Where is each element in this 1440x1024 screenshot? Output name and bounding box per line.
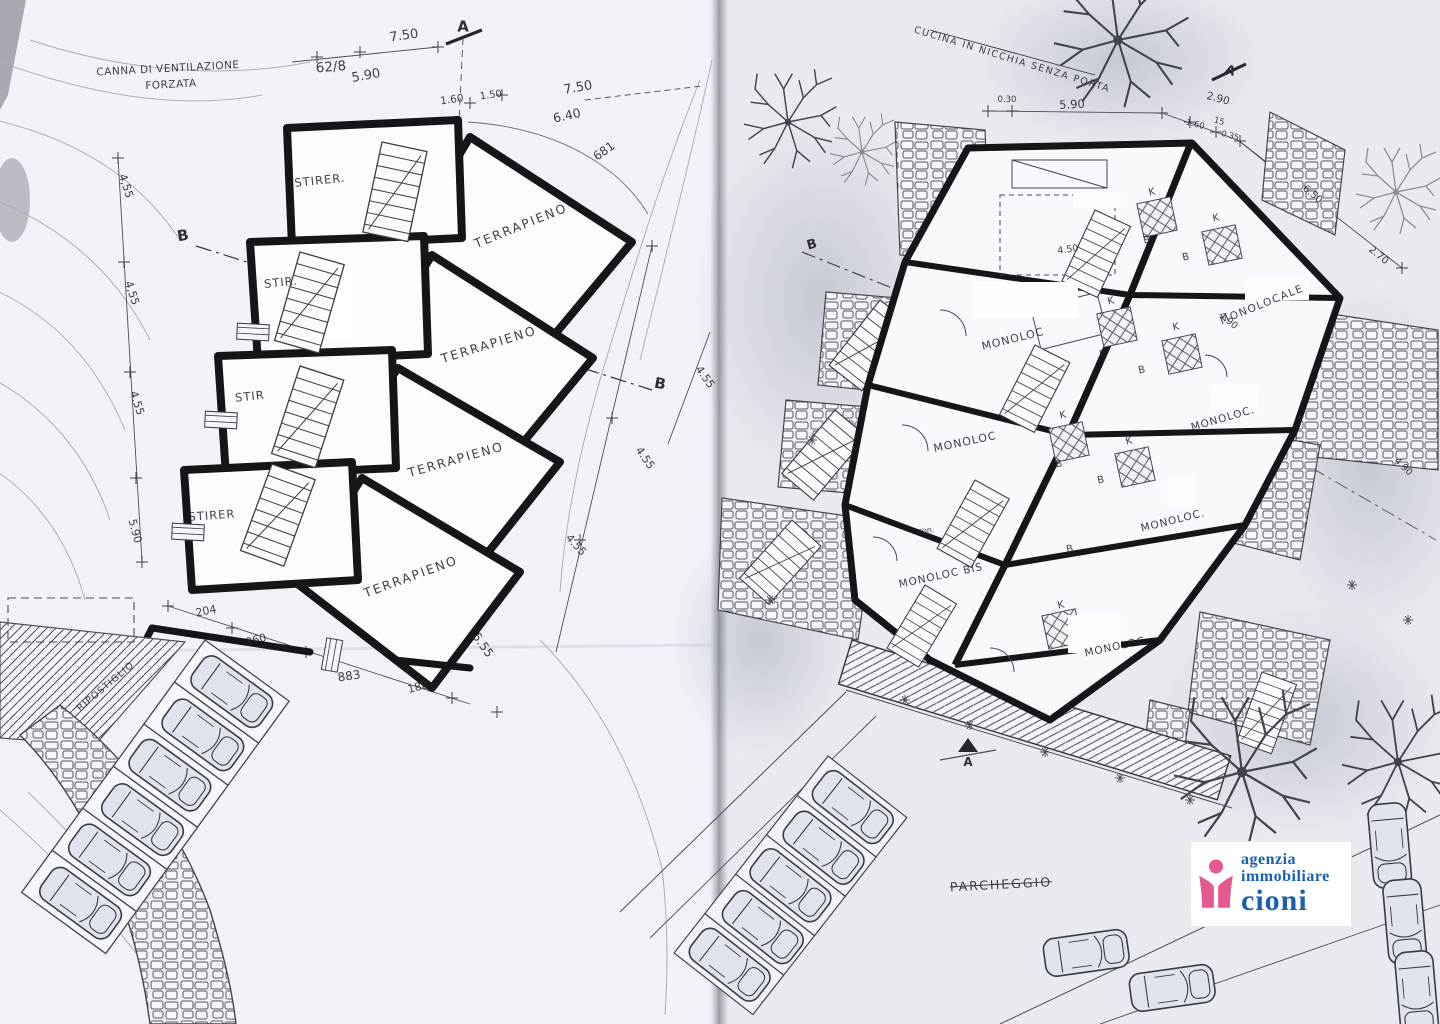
agency-logo: agenzia immobiliare cioni [1191, 842, 1351, 926]
kitchen-marker-k: K [1059, 410, 1067, 421]
kitchen-marker-k: K [1107, 296, 1115, 307]
kitchen-marker-k: K [1212, 213, 1220, 224]
kitchen-marker-k: K [1125, 436, 1133, 447]
section-marker-a: A [457, 20, 469, 35]
logo-line-agenzia: agenzia [1241, 852, 1330, 869]
annotation-forzata: FORZATA [145, 78, 197, 91]
room-label-stir: STIR [235, 390, 266, 405]
section-marker-a: A [963, 756, 972, 768]
dim-label: 883 [337, 668, 361, 683]
annotation-con: con. [917, 526, 935, 535]
dim-label: 5.90 [1059, 99, 1085, 112]
dim-label: 15 [1213, 116, 1226, 127]
logo-agency-name: cioni [1241, 886, 1330, 916]
section-marker-b: B [176, 228, 190, 245]
kitchen-marker-k: K [1172, 322, 1180, 333]
dim-label: 0.30 [998, 96, 1017, 105]
kitchen-marker-k: K [1148, 187, 1156, 198]
dim-label: 7.50 [389, 28, 419, 45]
parcel-number: 62/8 [315, 60, 346, 76]
kitchen-marker-k: K [1057, 600, 1065, 611]
agency-person-icon [1195, 853, 1237, 915]
logo-line-immobiliare: immobiliare [1241, 869, 1330, 886]
scanned-floor-plan: CANNA DI VENTILAZIONE FORZATA 7.50 5.90 … [0, 0, 1440, 1024]
